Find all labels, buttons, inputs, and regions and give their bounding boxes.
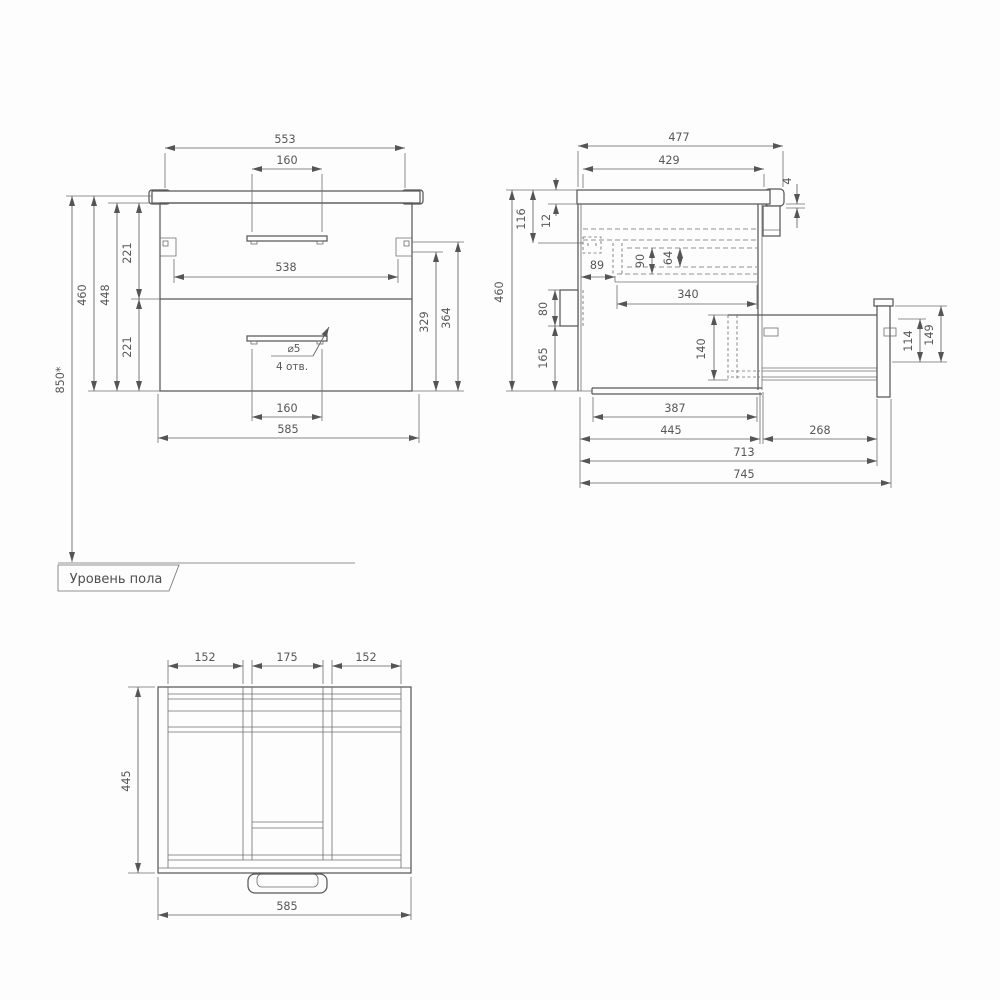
dim-side-drawer-inner-height: 64	[662, 251, 675, 265]
dim-side-bracket-height: 80	[537, 302, 550, 316]
dim-top-left-section: 152	[194, 651, 215, 664]
dim-side-drawer-bottom: 340	[677, 288, 698, 301]
dim-side-bottom-shelf: 387	[664, 402, 685, 415]
hole-count-callout: 4 отв.	[276, 361, 308, 373]
drawing-canvas: 553 160 538 850* 460 448	[0, 0, 1000, 1000]
dim-side-countertop-thickness: 12	[540, 214, 553, 228]
dim-side-carcass-depth: 429	[658, 154, 679, 167]
dim-front-right-inner: 329	[418, 311, 431, 332]
dim-front-handle-top: 160	[276, 154, 297, 167]
dim-front-body-height: 448	[99, 284, 112, 305]
front-view: 553 160 538 850* 460 448	[54, 133, 464, 562]
dim-front-top-width: 553	[274, 133, 295, 146]
dim-side-front-height: 149	[923, 324, 936, 345]
dim-front-right-outer: 364	[440, 307, 453, 328]
dim-side-drawer-back-height: 90	[634, 254, 647, 268]
dim-side-depth: 445	[660, 424, 681, 437]
dim-top-width: 585	[276, 900, 297, 913]
dim-side-top-inset: 116	[515, 208, 528, 229]
dim-side-back-inset: 89	[590, 259, 604, 272]
top-view-outline	[158, 687, 411, 893]
dim-front-lower-section: 221	[121, 336, 134, 357]
dim-front-mount-height: 850*	[54, 366, 67, 393]
dim-front-bottom-width: 585	[277, 423, 298, 436]
dim-side-front-inner: 114	[902, 330, 915, 351]
dim-side-drawer-side-height: 140	[695, 338, 708, 359]
dim-top-depth: 445	[120, 770, 133, 791]
dim-side-total-depth: 477	[668, 131, 689, 144]
dim-side-front-gap: 4	[781, 177, 794, 184]
dim-front-inner-width: 538	[275, 261, 296, 274]
side-view-outline	[560, 189, 896, 397]
vanity-technical-drawing: 553 160 538 850* 460 448	[0, 0, 1000, 1000]
dim-front-handle-bottom: 160	[276, 402, 297, 415]
dim-top-right-section: 152	[355, 651, 376, 664]
top-view: 152 175 152 445 585	[120, 651, 411, 920]
dim-side-bracket-to-bottom: 165	[537, 347, 550, 368]
dim-side-height: 460	[493, 281, 506, 302]
floor-level-label: Уровень пола	[70, 572, 163, 587]
hole-diameter-callout: ⌀5	[287, 343, 300, 355]
dim-front-upper-section: 221	[121, 242, 134, 263]
dim-side-extended-depth: 713	[733, 446, 754, 459]
dim-front-total-height: 460	[76, 284, 89, 305]
side-view: 477 429 4 116 12 460	[493, 131, 947, 488]
dim-top-center-section: 175	[276, 651, 297, 664]
dim-side-max-depth: 745	[733, 468, 754, 481]
floor-level-marker: Уровень пола	[58, 563, 355, 591]
dim-side-drawer-extension: 268	[809, 424, 830, 437]
